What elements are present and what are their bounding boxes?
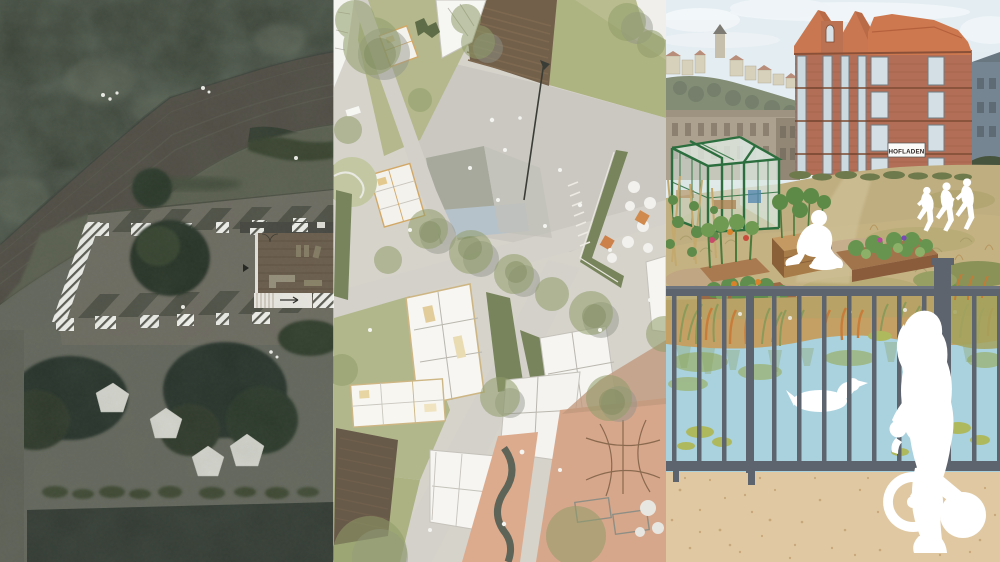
svg-text:HOFLADEN: HOFLADEN [889,149,925,156]
